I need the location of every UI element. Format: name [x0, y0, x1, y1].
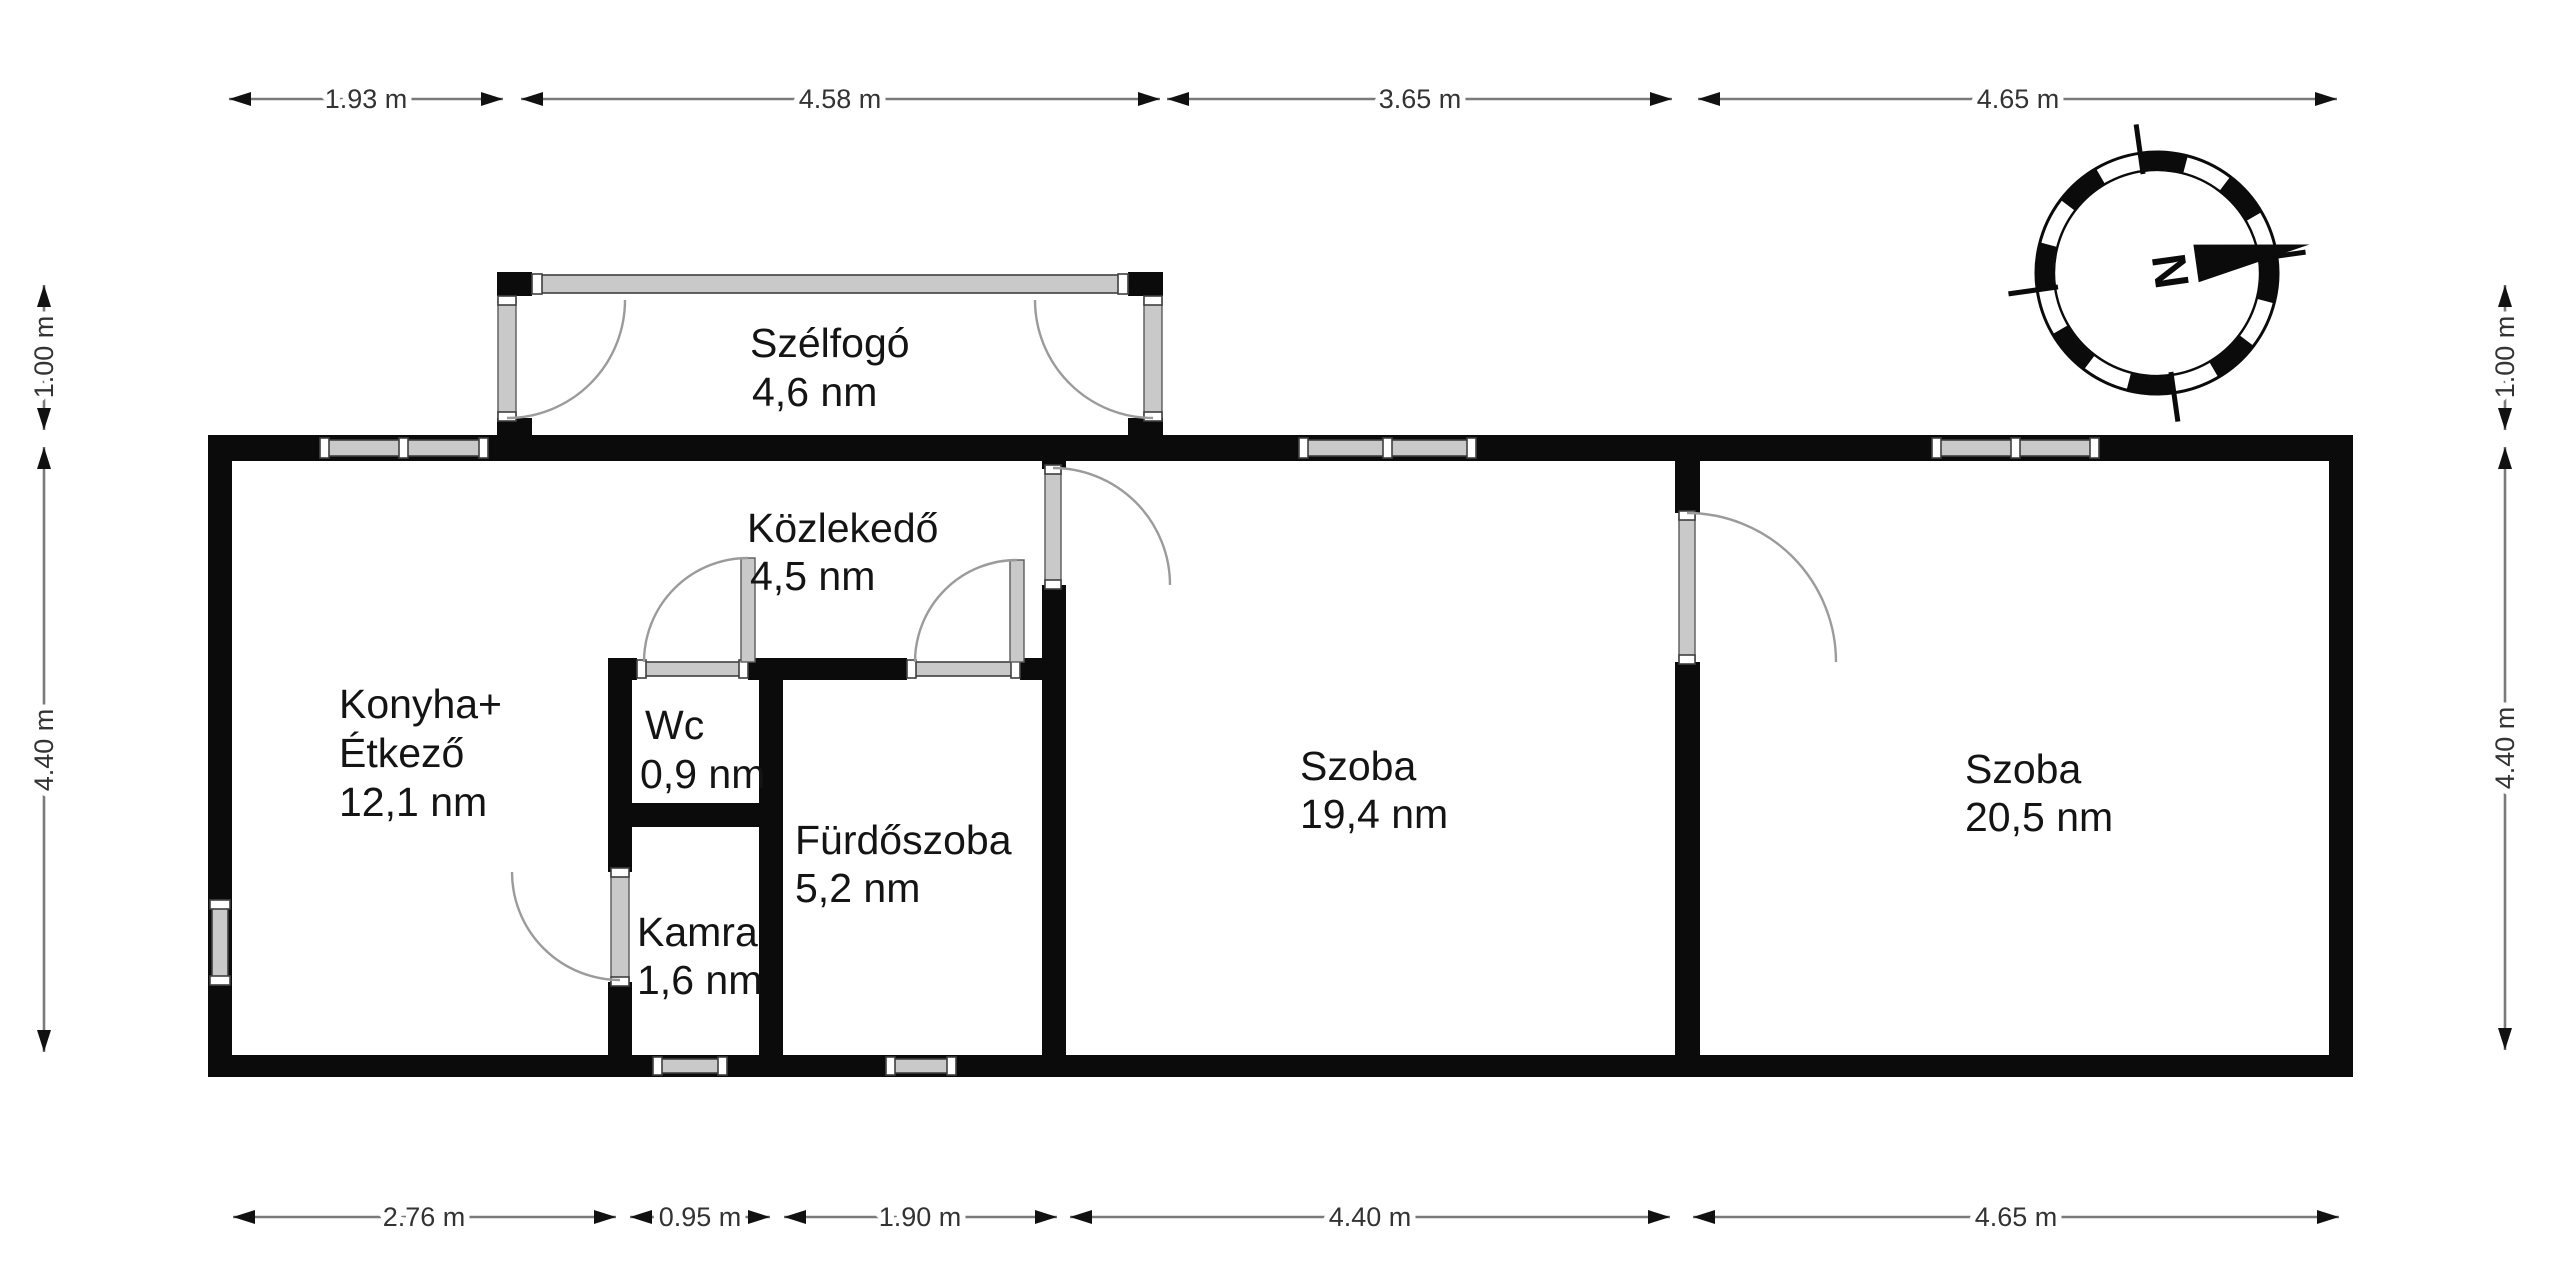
dim-bottom-4-label: 4.40 m — [1329, 1202, 1412, 1232]
dim-top-3: 3.65 m — [1167, 84, 1672, 114]
room-label-szoba2: Szoba — [1965, 746, 2081, 792]
room-area-szoba2: 20,5 nm — [1965, 794, 2113, 840]
compass-icon: N — [1988, 103, 2332, 443]
dim-top-4: 4.65 m — [1698, 84, 2337, 114]
wall-szoba-divider-bottom — [1675, 662, 1700, 1055]
dimension-bottom: 2.76 m 0.95 m 1.90 m 4.40 m 4.65 m — [233, 1202, 2339, 1232]
doors — [512, 465, 1836, 986]
szelfogo-door-left-cap-bottom — [498, 412, 516, 421]
room-label-konyha-line2: Étkező — [339, 730, 464, 776]
wall-wc-furdo-top-mid — [748, 658, 907, 680]
dim-top-1-label: 1.93 m — [325, 84, 408, 114]
wall-szoba1-left-lower — [1042, 585, 1066, 1055]
wall-wc-top-left — [608, 658, 637, 680]
room-area-szelfogo: 4,6 nm — [752, 369, 877, 415]
room-area-szoba1: 19,4 nm — [1300, 791, 1448, 837]
wall-wc-kamra-divider — [608, 803, 783, 827]
wall-wc-kamra-left-upper — [608, 658, 632, 872]
wall-right — [2329, 435, 2353, 1077]
szelfogo-door-right-cap-top — [1144, 296, 1162, 305]
room-area-konyha: 12,1 nm — [339, 779, 487, 825]
szelfogo-post-top-left — [497, 272, 532, 296]
window-szoba2-top — [1932, 438, 2099, 458]
dim-bottom-5-label: 4.65 m — [1975, 1202, 2058, 1232]
dim-left-1: 1.00 m — [29, 285, 59, 430]
floor-plan-drawing: Szélfogó 4,6 nm Közlekedő 4,5 nm Konyha+… — [0, 0, 2557, 1280]
window-konyha-top — [320, 438, 488, 458]
window-szoba1-top — [1299, 438, 1476, 458]
dim-bottom-3: 1.90 m — [784, 1202, 1057, 1232]
dimension-right: 1.00 m 4.40 m — [2490, 285, 2520, 1050]
dim-bottom-1: 2.76 m — [233, 1202, 616, 1232]
dim-bottom-2: 0.95 m — [630, 1202, 770, 1232]
room-label-kamra: Kamra — [637, 909, 758, 955]
room-area-kozlekedo: 4,5 nm — [750, 553, 875, 599]
szelfogo-door-right-swing-arc — [1035, 300, 1153, 418]
room-label-furdoszoba: Fürdőszoba — [795, 817, 1012, 863]
window-kamra-bottom — [653, 1057, 727, 1075]
szelfogo-window-band — [532, 275, 1128, 293]
dim-left-2: 4.40 m — [29, 447, 59, 1052]
door-wc — [637, 558, 755, 678]
dim-top-2: 4.58 m — [521, 84, 1160, 114]
room-label-szelfogo: Szélfogó — [750, 320, 910, 366]
dim-bottom-4: 4.40 m — [1070, 1202, 1670, 1232]
room-label-szoba1: Szoba — [1300, 743, 1416, 789]
room-area-kamra: 1,6 nm — [637, 957, 762, 1003]
wall-wc-kamra-left-lower — [608, 982, 632, 1055]
szelfogo-window-cap-right — [1118, 274, 1128, 294]
szelfogo-door-left-cap-top — [498, 296, 516, 305]
windows — [210, 438, 2099, 1075]
door-szoba2 — [1679, 511, 1836, 664]
dim-right-2: 4.40 m — [2490, 447, 2520, 1050]
dim-bottom-3-label: 1.90 m — [879, 1202, 962, 1232]
szelfogo-window-cap-left — [532, 274, 542, 294]
dim-bottom-5: 4.65 m — [1693, 1202, 2339, 1232]
dimension-top: 1.93 m 4.58 m 3.65 m 4.65 m — [229, 84, 2337, 114]
window-furdo-bottom — [886, 1057, 956, 1075]
door-szoba1 — [1045, 465, 1170, 589]
dim-right-1-label: 1.00 m — [2490, 316, 2520, 399]
dim-top-4-label: 4.65 m — [1977, 84, 2060, 114]
room-labels: Szélfogó 4,6 nm Közlekedő 4,5 nm Konyha+… — [339, 320, 2113, 1003]
dim-left-1-label: 1.00 m — [29, 316, 59, 399]
wall-kamra-furdo — [759, 658, 783, 1055]
dim-top-2-label: 4.58 m — [799, 84, 882, 114]
dim-top-3-label: 3.65 m — [1379, 84, 1462, 114]
window-konyha-left — [210, 900, 230, 985]
szelfogo-door-left-swing-arc — [507, 300, 625, 418]
wall-bottom — [208, 1055, 2353, 1077]
room-label-konyha-line1: Konyha+ — [339, 681, 502, 727]
dim-left-2-label: 4.40 m — [29, 709, 59, 792]
door-furdoszoba — [907, 560, 1024, 678]
dim-bottom-1-label: 2.76 m — [383, 1202, 466, 1232]
compass-north-letter: N — [2141, 250, 2198, 292]
door-kamra — [512, 868, 629, 986]
szelfogo-door-right-cap-bottom — [1144, 412, 1162, 421]
szelfogo-door-left-leaf — [498, 300, 516, 418]
dim-top-1: 1.93 m — [229, 84, 503, 114]
room-label-wc: Wc — [645, 702, 704, 748]
dimension-left: 1.00 m 4.40 m — [29, 285, 59, 1052]
floor-plan-page: Szélfogó 4,6 nm Közlekedő 4,5 nm Konyha+… — [0, 0, 2557, 1280]
szelfogo-door-right-leaf — [1144, 300, 1162, 418]
room-label-kozlekedo: Közlekedő — [747, 505, 938, 551]
dim-right-1: 1.00 m — [2490, 285, 2520, 430]
room-area-wc: 0,9 nm — [640, 751, 765, 797]
wall-szoba-divider-top — [1675, 461, 1700, 513]
szelfogo-post-top-right — [1128, 272, 1163, 296]
dim-right-2-label: 4.40 m — [2490, 707, 2520, 790]
dim-bottom-2-label: 0.95 m — [659, 1202, 742, 1232]
room-area-furdoszoba: 5,2 nm — [795, 865, 920, 911]
